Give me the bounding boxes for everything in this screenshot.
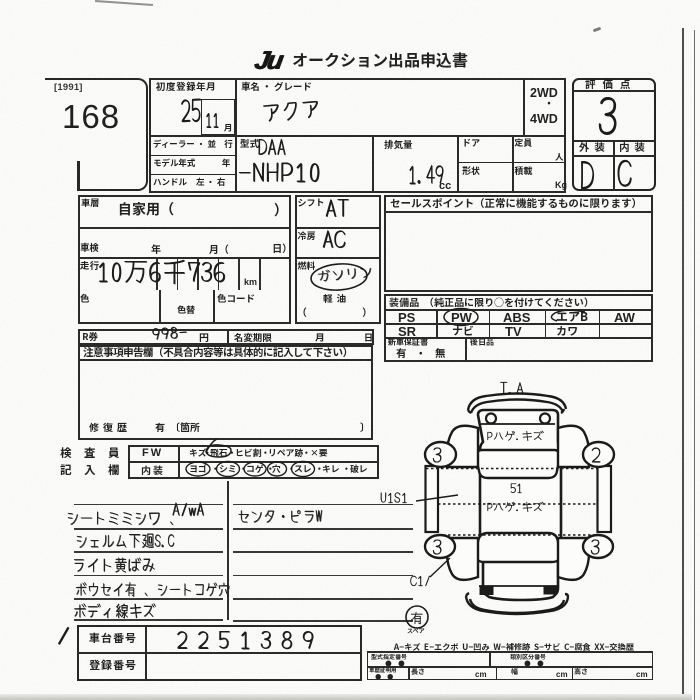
svg-text:2: 2 bbox=[591, 440, 602, 470]
svg-text:51: 51 bbox=[510, 478, 523, 497]
svg-text:有: 有 bbox=[410, 608, 424, 628]
svg-text:T.A: T.A bbox=[500, 375, 524, 399]
svg-text:3: 3 bbox=[432, 532, 443, 562]
svg-text:3: 3 bbox=[590, 532, 601, 562]
svg-text:スペア: スペア bbox=[407, 626, 425, 635]
svg-text:Pハゲ.キズ: Pハゲ.キズ bbox=[487, 428, 545, 444]
svg-text:Pハゲ.キズ: Pハゲ.キズ bbox=[487, 499, 545, 515]
svg-text:C1/: C1/ bbox=[410, 571, 431, 591]
svg-text:3: 3 bbox=[432, 440, 443, 470]
svg-text:U1S1: U1S1 bbox=[380, 488, 408, 508]
